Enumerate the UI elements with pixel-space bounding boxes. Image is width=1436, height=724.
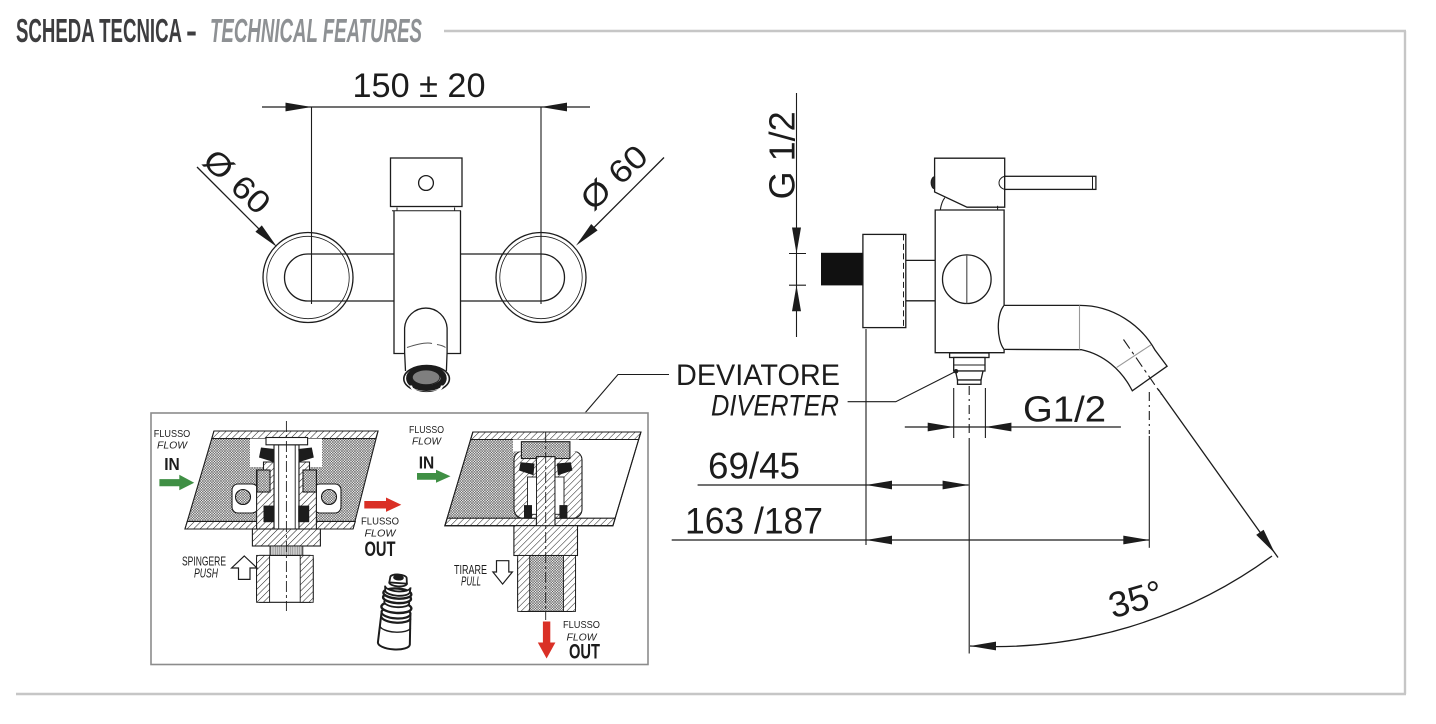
svg-text:G1/2: G1/2 <box>1023 389 1106 430</box>
svg-text:FLOW: FLOW <box>412 436 442 448</box>
svg-text:G 1/2: G 1/2 <box>762 111 803 199</box>
svg-text:FLUSSO: FLUSSO <box>409 424 444 436</box>
svg-text:PUSH: PUSH <box>194 567 219 581</box>
svg-text:FLOW: FLOW <box>157 440 188 452</box>
svg-text:FLUSSO: FLUSSO <box>563 619 600 631</box>
svg-text:-: - <box>186 12 197 49</box>
svg-text:FLUSSO: FLUSSO <box>154 428 191 440</box>
svg-text:OUT: OUT <box>365 538 396 561</box>
svg-text:PULL: PULL <box>461 575 481 589</box>
svg-text:SCHEDA TECNICA: SCHEDA TECNICA <box>16 12 182 49</box>
svg-text:150 ± 20: 150 ± 20 <box>353 67 486 105</box>
svg-text:69/45: 69/45 <box>708 446 800 487</box>
svg-text:DIVERTER: DIVERTER <box>711 390 839 423</box>
svg-text:IN: IN <box>164 454 180 474</box>
svg-text:OUT: OUT <box>569 641 600 664</box>
svg-text:IN: IN <box>419 453 435 473</box>
svg-text:DEVIATORE: DEVIATORE <box>676 359 840 392</box>
svg-text:FLUSSO: FLUSSO <box>361 516 399 528</box>
svg-text:163 /187: 163 /187 <box>685 501 823 542</box>
svg-text:TECHNICAL FEATURES: TECHNICAL FEATURES <box>210 12 422 49</box>
